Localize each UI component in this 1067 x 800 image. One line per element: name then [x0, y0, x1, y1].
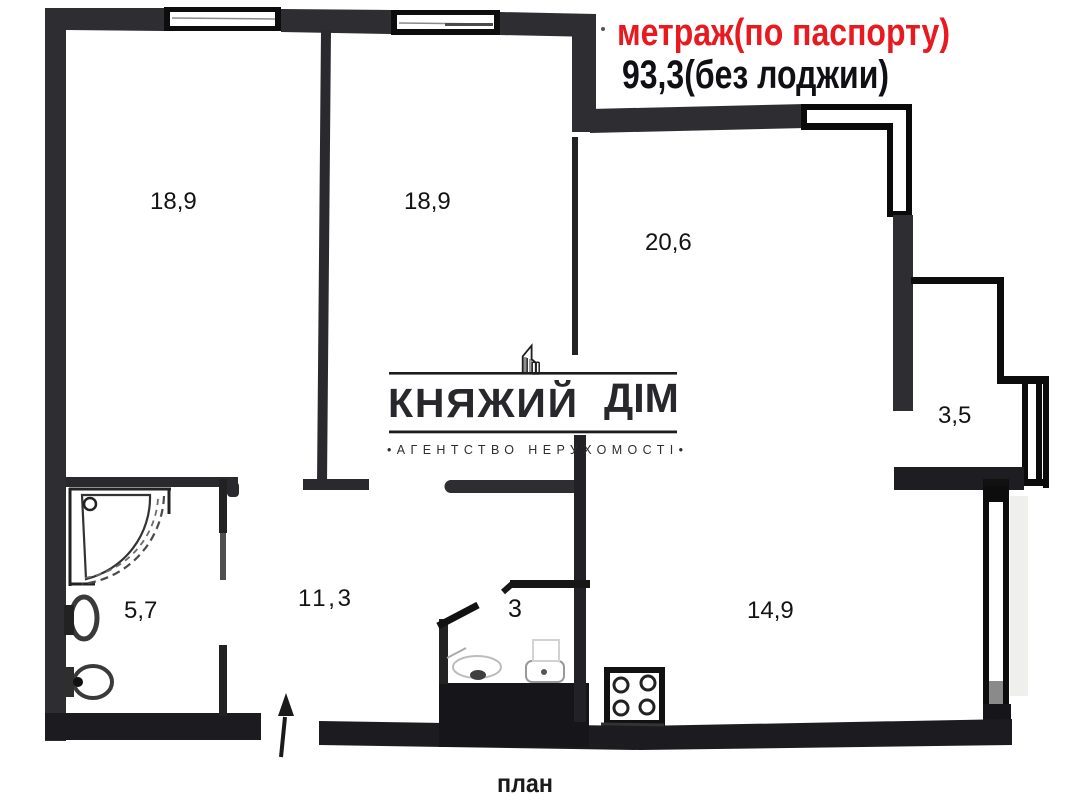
svg-text:11,3: 11,3	[298, 585, 351, 612]
svg-text:3,5: 3,5	[938, 402, 971, 429]
svg-text:93,3(без лоджии): 93,3(без лоджии)	[622, 53, 889, 97]
svg-text:ДІМ: ДІМ	[604, 375, 679, 421]
svg-text:18,9: 18,9	[404, 188, 451, 215]
svg-text:КНЯЖИЙ: КНЯЖИЙ	[388, 380, 579, 426]
svg-text:14,9: 14,9	[747, 597, 794, 624]
svg-text:20,6: 20,6	[645, 229, 692, 256]
svg-text:план: план	[497, 768, 553, 798]
svg-text:18,9: 18,9	[150, 188, 197, 215]
svg-text:метраж(по паспорту): метраж(по паспорту)	[617, 12, 950, 54]
svg-text:5,7: 5,7	[124, 597, 157, 624]
svg-text:3: 3	[508, 595, 522, 623]
